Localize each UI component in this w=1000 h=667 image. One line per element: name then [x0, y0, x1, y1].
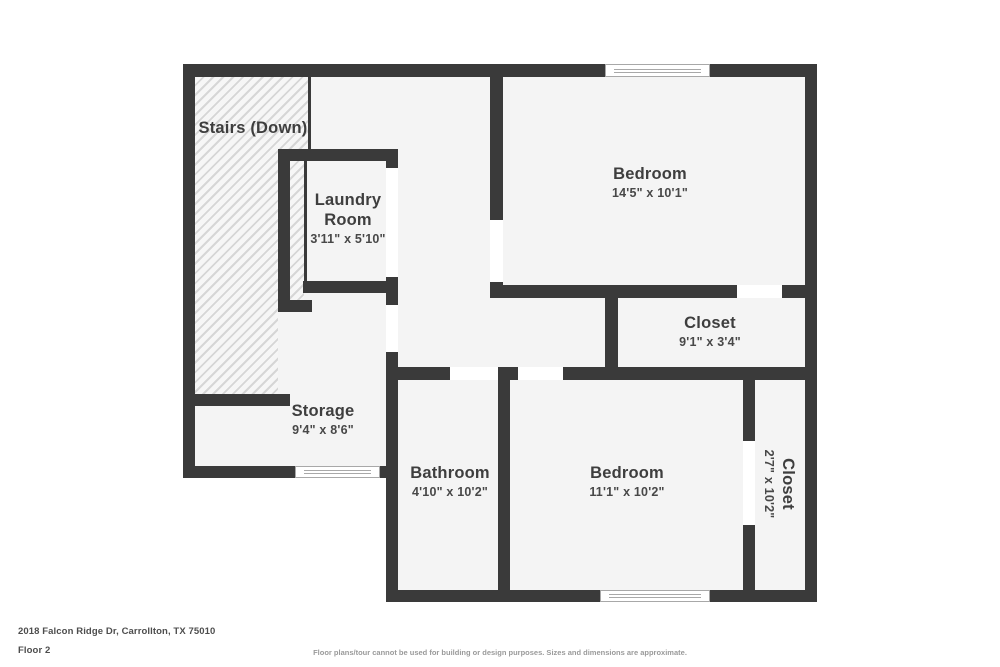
room-label-closet-right: Closet 2'7" x 10'2" — [762, 450, 798, 519]
stairs-hatch-right-edge — [308, 75, 311, 151]
room-label-storage: Storage 9'4" x 8'6" — [292, 401, 355, 437]
door-opening-bathroom — [450, 367, 498, 380]
door-opening-bedroom-top — [490, 220, 503, 282]
room-dims: 3'11" x 5'10" — [304, 232, 392, 246]
wall-laundry-bottom — [303, 281, 398, 293]
window-storage — [295, 466, 380, 478]
room-dims: 9'4" x 8'6" — [292, 423, 355, 437]
wall-chute-cap — [278, 300, 312, 312]
room-label-bedroom-top: Bedroom 14'5" x 10'1" — [612, 164, 688, 200]
room-label-closet-top: Closet 9'1" x 3'4" — [679, 313, 741, 349]
wall-outer-left — [183, 64, 195, 478]
room-dims: 9'1" x 3'4" — [679, 335, 741, 349]
room-name: Bathroom — [410, 463, 490, 483]
footer-disclaimer: Floor plans/tour cannot be used for buil… — [0, 648, 1000, 657]
room-name: Closet — [778, 450, 798, 519]
window-pane — [614, 69, 701, 73]
laundry-chute-hatch — [290, 161, 304, 300]
window-pane — [304, 470, 371, 474]
wall-bathroom-bedroom-divider — [498, 367, 510, 602]
wall-laundry-top — [278, 149, 398, 161]
room-dims: 2'7" x 10'2" — [762, 450, 776, 519]
room-name: Laundry Room — [304, 190, 392, 230]
room-name: Closet — [679, 313, 741, 333]
window-bedroom-top — [605, 64, 710, 77]
wall-bedroom-closet-divider-top — [743, 367, 755, 441]
wall-outer-right — [805, 64, 817, 602]
room-label-bathroom: Bathroom 4'10" x 10'2" — [410, 463, 490, 499]
door-opening-storage — [386, 305, 398, 352]
room-dims: 14'5" x 10'1" — [612, 186, 688, 200]
wall-laundry-right-upper — [386, 149, 398, 168]
wall-closet-top-left — [605, 285, 618, 380]
room-name: Stairs (Down) — [199, 118, 308, 138]
door-opening-closet-right — [743, 441, 755, 525]
wall-laundry-left — [278, 149, 290, 312]
door-opening-closet-top — [737, 285, 782, 298]
wall-bedroom-closet-divider-bottom — [743, 525, 755, 602]
room-label-bedroom-bottom: Bedroom 11'1" x 10'2" — [589, 463, 664, 499]
room-dims: 4'10" x 10'2" — [410, 485, 490, 499]
room-label-stairs: Stairs (Down) — [199, 118, 308, 138]
room-name: Bedroom — [589, 463, 664, 483]
floor-plan-canvas: Stairs (Down) Laundry Room 3'11" x 5'10"… — [0, 0, 1000, 667]
wall-bathroom-left — [386, 352, 398, 602]
room-name: Storage — [292, 401, 355, 421]
wall-rooms-top-c — [563, 367, 817, 380]
window-pane — [609, 594, 701, 598]
wall-rooms-top-a — [386, 367, 450, 380]
wall-bedroom-top-left-upper — [490, 64, 503, 220]
footer-address: 2018 Falcon Ridge Dr, Carrollton, TX 750… — [18, 626, 215, 637]
window-bedroom-bottom — [600, 590, 710, 602]
wall-stairs-bottom — [183, 394, 290, 406]
room-label-laundry: Laundry Room 3'11" x 5'10" — [304, 190, 392, 246]
wall-bedroom-top-bottom-right — [782, 285, 817, 298]
room-name: Bedroom — [612, 164, 688, 184]
door-opening-bedroom-bottom — [518, 367, 563, 380]
room-dims: 11'1" x 10'2" — [589, 485, 664, 499]
